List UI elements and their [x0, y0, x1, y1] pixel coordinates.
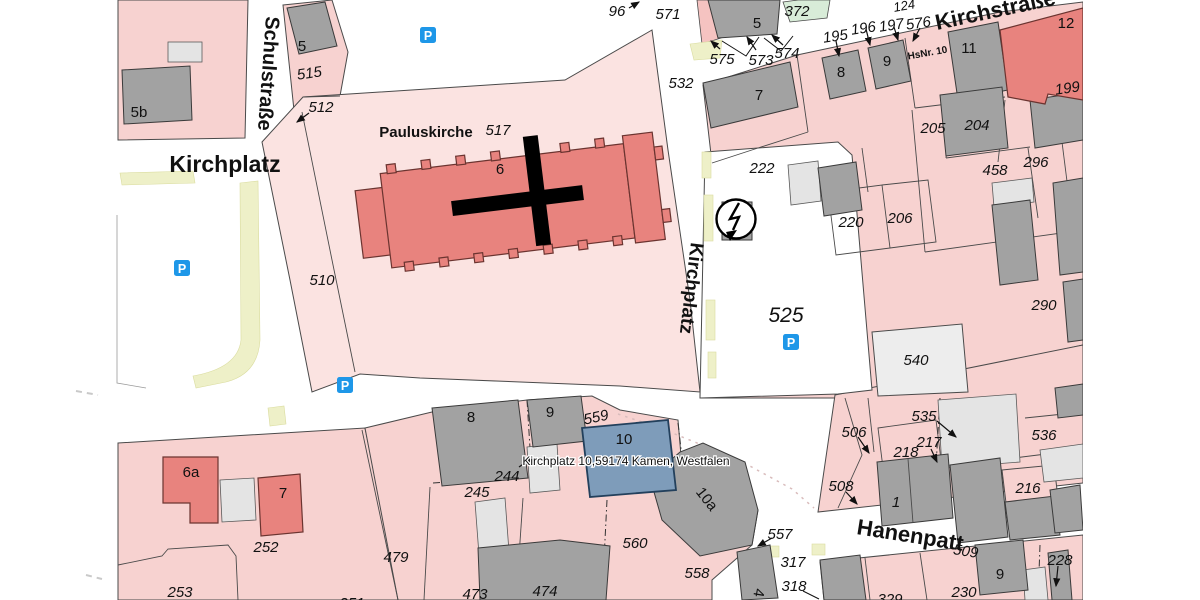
parcel-label-540: 540 [903, 352, 929, 369]
parcel-label-574: 574 [774, 45, 799, 62]
parking-icon: P [783, 334, 799, 350]
parcel-label-206: 206 [886, 210, 913, 227]
building-label-6: 6 [496, 161, 504, 178]
building-label-7-top: 7 [755, 87, 763, 104]
parcel-label-222: 222 [748, 160, 775, 177]
building-label-12: 12 [1058, 15, 1075, 32]
building-label-8-top: 8 [837, 64, 845, 81]
street-label-kirchplatz-plaza: Kirchplatz [169, 151, 280, 177]
parcel-label-317: 317 [780, 554, 806, 571]
parcel-label-573: 573 [748, 52, 774, 69]
parcel-label-290: 290 [1030, 297, 1057, 314]
parcel-label-228: 228 [1046, 552, 1073, 569]
parking-letter: P [341, 379, 349, 393]
parcel-label-372: 372 [784, 3, 810, 20]
parcel-label-251: 251 [338, 595, 364, 600]
parcel-label-195: 195 [822, 26, 850, 46]
parcel-label-525: 525 [768, 304, 803, 327]
parcel-label-536: 536 [1031, 427, 1057, 444]
parcel-label-510: 510 [309, 272, 335, 289]
building-label-5b: 5b [131, 104, 148, 121]
parcel-label-571: 571 [655, 6, 680, 23]
building-1 [877, 454, 953, 526]
poi-label-pauluskirche: Pauluskirche [379, 124, 472, 141]
parcel-label-124: 124 [892, 0, 916, 15]
parcel-label-296: 296 [1022, 154, 1049, 171]
parcel-label-252: 252 [252, 539, 279, 556]
parcel-label-515: 515 [296, 63, 324, 83]
building-label-5-top: 5 [753, 15, 761, 32]
street-label-schulstrasse: Schulstraße [253, 16, 283, 132]
parcel-label-517: 517 [485, 122, 511, 139]
parcel-label-560: 560 [622, 535, 648, 552]
building-label-9-south: 9 [546, 404, 554, 421]
parcel-label-535: 535 [911, 408, 937, 425]
parking-letter: P [178, 262, 186, 276]
parking-letter: P [787, 336, 795, 350]
parcel-label-512: 512 [308, 99, 334, 116]
building-label-5-left: 5 [298, 38, 306, 55]
parcel-label-204: 204 [963, 117, 989, 134]
parcel-label-558: 558 [684, 565, 710, 582]
parcel-label-196: 196 [850, 18, 878, 38]
parcel-label-220: 220 [837, 214, 864, 231]
parcel-label-217: 217 [915, 434, 942, 451]
building-label-10: 10 [616, 431, 633, 448]
building-label-9-southeast: 9 [996, 566, 1004, 583]
parcel-label-318: 318 [781, 578, 807, 595]
parking-icon: P [420, 27, 436, 43]
parcel-label-230: 230 [950, 584, 977, 600]
parcel-label-96: 96 [609, 3, 626, 20]
parcel-label-197: 197 [878, 15, 906, 35]
parcel-label-244: 244 [493, 468, 519, 485]
building-label-6a: 6a [183, 464, 200, 481]
parcel-label-575: 575 [709, 51, 735, 68]
parcel-label-474: 474 [532, 583, 557, 600]
building-label-1: 1 [892, 494, 900, 511]
parcel-label-329: 329 [877, 591, 903, 600]
parcel-label-473: 473 [462, 586, 488, 600]
parcel-label-253: 253 [166, 584, 193, 600]
building-label-9-top: 9 [883, 53, 891, 70]
address-label: Kirchplatz 10,59174 Kamen, Westfalen [522, 454, 729, 468]
cadastral-map[interactable]: P P P P 96 124 195 196 [0, 0, 1200, 600]
building-label-11: 11 [961, 40, 977, 57]
parcel-label-506: 506 [841, 424, 867, 441]
parcel-label-216: 216 [1014, 480, 1041, 497]
parcel-label-458: 458 [982, 162, 1008, 179]
parcel-label-199: 199 [1054, 78, 1082, 98]
parcel-label-205: 205 [919, 120, 946, 137]
parking-letter: P [424, 29, 432, 43]
building-7-southwest [258, 474, 303, 536]
parcel-label-508: 508 [828, 478, 854, 495]
parcel-southwest [118, 428, 400, 600]
parcel-label-218: 218 [892, 444, 919, 461]
building-label-7-southwest: 7 [279, 485, 287, 502]
parcel-label-245: 245 [463, 484, 490, 501]
parking-icon: P [337, 377, 353, 393]
building-9-south [527, 396, 587, 447]
parcel-label-479: 479 [383, 549, 409, 566]
building-label-8-south: 8 [467, 409, 475, 426]
parcel-label-557: 557 [767, 526, 793, 543]
map-canvas[interactable]: P P P P 96 124 195 196 [0, 0, 1200, 600]
parcel-label-576: 576 [905, 13, 933, 33]
parking-icon: P [174, 260, 190, 276]
parcel-label-532: 532 [668, 75, 694, 92]
